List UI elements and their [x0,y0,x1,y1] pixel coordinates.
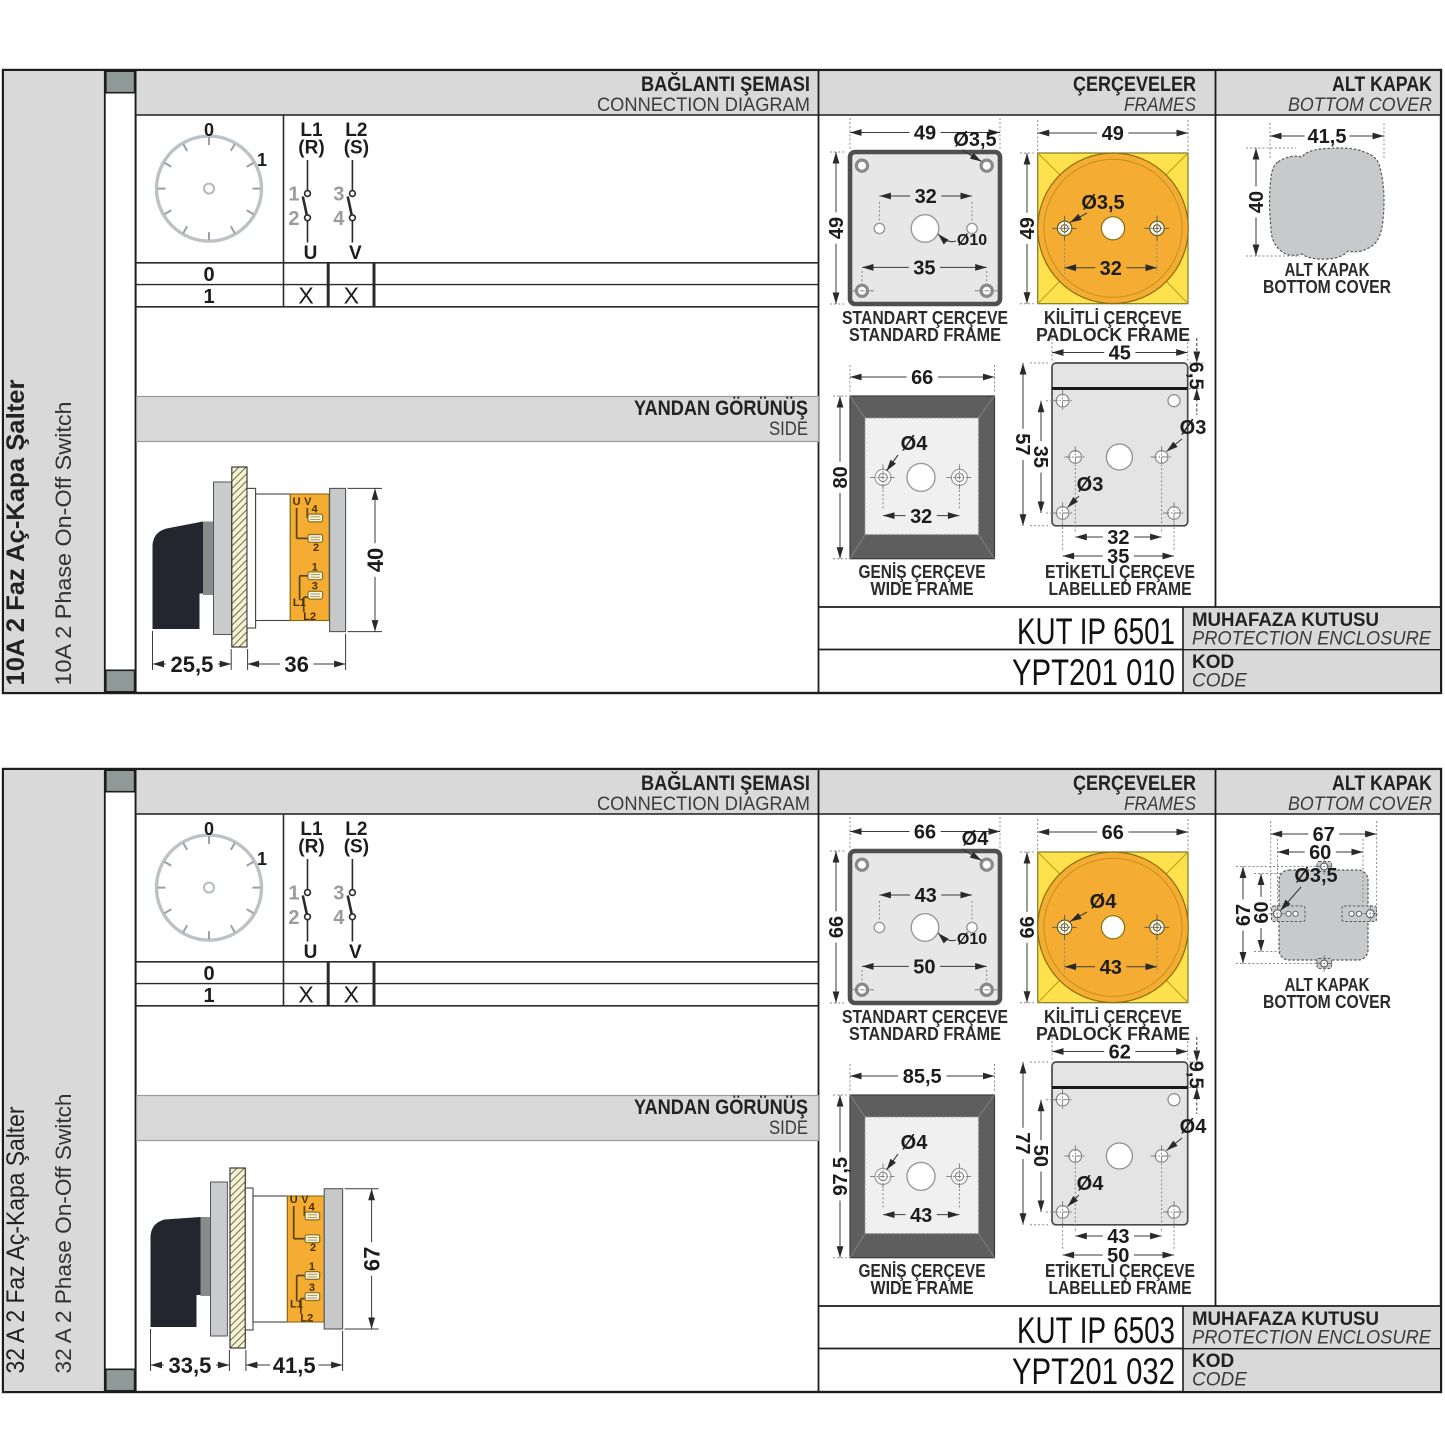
svg-text:BAĞLANTI ŞEMASI: BAĞLANTI ŞEMASI [641,771,810,795]
svg-text:50: 50 [913,957,935,979]
svg-text:1: 1 [257,849,267,869]
svg-text:STANDARD FRAME: STANDARD FRAME [849,324,1001,345]
svg-text:U: U [304,942,318,963]
svg-text:CODE: CODE [1192,1370,1247,1391]
svg-text:67: 67 [360,1247,385,1271]
svg-text:BOTTOM COVER: BOTTOM COVER [1263,991,1391,1012]
svg-text:3: 3 [333,883,344,905]
svg-text:97,5: 97,5 [830,1157,852,1196]
svg-text:LABELLED FRAME: LABELLED FRAME [1049,578,1192,599]
svg-text:6,5: 6,5 [1185,362,1207,390]
svg-text:1: 1 [288,184,299,206]
svg-text:45: 45 [1109,343,1131,365]
svg-text:Ø3: Ø3 [1180,417,1207,439]
svg-text:49: 49 [914,123,936,145]
svg-text:1: 1 [257,150,267,170]
svg-text:Ø3: Ø3 [1077,474,1104,496]
svg-text:66: 66 [1102,822,1124,844]
svg-text:YPT201 010: YPT201 010 [1012,652,1175,693]
svg-text:66: 66 [1017,916,1039,938]
svg-text:PROTECTION ENCLOSURE: PROTECTION ENCLOSURE [1192,629,1431,650]
svg-text:2: 2 [288,208,299,230]
svg-text:Ø4: Ø4 [1090,891,1118,913]
svg-text:ÇERÇEVELER: ÇERÇEVELER [1073,772,1196,795]
svg-text:LABELLED FRAME: LABELLED FRAME [1049,1277,1192,1298]
svg-text:2: 2 [288,907,299,929]
svg-text:36: 36 [284,652,308,677]
svg-text:66: 66 [914,822,936,844]
svg-text:3: 3 [333,184,344,206]
svg-text:66: 66 [826,916,848,938]
svg-text:WIDE FRAME: WIDE FRAME [871,578,974,599]
svg-text:40: 40 [363,548,388,572]
svg-text:Ø4: Ø4 [901,1132,929,1154]
svg-text:41,5: 41,5 [1308,126,1347,148]
svg-text:SIDE: SIDE [769,418,808,440]
svg-text:2: 2 [310,1242,316,1254]
svg-text:Ø10: Ø10 [957,931,987,948]
svg-text:1: 1 [203,985,214,1007]
svg-text:U: U [290,1194,298,1206]
svg-text:V: V [349,243,362,264]
svg-text:Ø4: Ø4 [1077,1173,1105,1195]
svg-text:4: 4 [333,907,345,929]
svg-text:25,5: 25,5 [170,652,213,677]
svg-text:YANDAN GÖRÜNÜŞ: YANDAN GÖRÜNÜŞ [634,1096,808,1119]
svg-text:Ø10: Ø10 [957,232,987,249]
svg-text:V: V [349,942,362,963]
svg-text:BOTTOM COVER: BOTTOM COVER [1288,94,1432,116]
svg-text:2: 2 [313,542,319,554]
svg-text:(R): (R) [298,837,324,858]
svg-text:KUT IP 6503: KUT IP 6503 [1017,1310,1175,1351]
svg-text:BAĞLANTI ŞEMASI: BAĞLANTI ŞEMASI [641,72,810,96]
svg-text:60: 60 [1251,901,1273,923]
svg-text:STANDARD FRAME: STANDARD FRAME [849,1023,1001,1044]
svg-text:CONNECTION DIAGRAM: CONNECTION DIAGRAM [597,793,810,815]
svg-text:32 A 2 Faz Aç-Kapa Şalter: 32 A 2 Faz Aç-Kapa Şalter [2,1107,30,1374]
svg-text:(S): (S) [344,138,369,159]
svg-text:50: 50 [1029,1145,1051,1167]
svg-text:L1: L1 [293,597,306,609]
svg-text:FRAMES: FRAMES [1124,793,1196,815]
svg-text:85,5: 85,5 [903,1066,942,1088]
svg-text:4: 4 [309,1202,316,1214]
svg-text:43: 43 [915,885,937,907]
svg-text:3: 3 [309,1282,315,1294]
svg-text:U: U [304,243,318,264]
svg-text:X: X [344,982,359,1008]
svg-text:Ø3,5: Ø3,5 [1081,192,1124,214]
svg-text:X: X [298,982,313,1008]
svg-text:Ø4: Ø4 [901,433,929,455]
svg-text:32 A 2 Phase On-Off Switch: 32 A 2 Phase On-Off Switch [51,1094,76,1374]
svg-text:YPT201 032: YPT201 032 [1012,1351,1175,1392]
svg-text:PROTECTION ENCLOSURE: PROTECTION ENCLOSURE [1192,1328,1431,1349]
svg-text:62: 62 [1109,1042,1131,1064]
svg-text:0: 0 [203,264,214,286]
svg-text:1: 1 [312,561,318,573]
svg-text:FRAMES: FRAMES [1124,94,1196,116]
svg-text:60: 60 [1309,842,1331,864]
svg-text:WIDE FRAME: WIDE FRAME [871,1277,974,1298]
svg-text:U: U [293,496,301,508]
svg-text:10A 2 Phase On-Off Switch: 10A 2 Phase On-Off Switch [51,402,76,686]
svg-text:YANDAN GÖRÜNÜŞ: YANDAN GÖRÜNÜŞ [634,397,808,420]
svg-text:Ø3,5: Ø3,5 [1294,865,1337,887]
svg-text:L2: L2 [303,611,316,623]
svg-text:35: 35 [1029,446,1051,468]
svg-text:CODE: CODE [1192,671,1247,692]
svg-text:Ø4: Ø4 [962,828,990,850]
svg-text:43: 43 [1100,957,1122,979]
svg-text:49: 49 [1102,123,1124,145]
svg-text:66: 66 [911,367,933,389]
svg-text:43: 43 [910,1205,932,1227]
svg-text:L2: L2 [300,1313,313,1325]
svg-text:80: 80 [830,466,852,488]
svg-text:32: 32 [910,506,932,528]
svg-text:ALT KAPAK: ALT KAPAK [1332,772,1432,795]
svg-text:4: 4 [312,504,319,516]
svg-text:40: 40 [1246,191,1268,213]
svg-text:49: 49 [1017,217,1039,239]
svg-text:KUT IP 6501: KUT IP 6501 [1017,611,1175,652]
svg-text:0: 0 [204,819,214,839]
svg-text:1: 1 [288,883,299,905]
svg-text:(R): (R) [298,138,324,159]
svg-text:49: 49 [826,217,848,239]
svg-text:10A 2 Faz Aç-Kapa Şalter: 10A 2 Faz Aç-Kapa Şalter [2,379,30,685]
svg-text:ALT KAPAK: ALT KAPAK [1332,73,1432,96]
svg-text:BOTTOM COVER: BOTTOM COVER [1263,276,1391,297]
svg-text:Ø4: Ø4 [1180,1116,1208,1138]
svg-text:(S): (S) [344,837,369,858]
svg-text:35: 35 [913,258,935,280]
svg-text:0: 0 [203,963,214,985]
svg-text:L1: L1 [290,1299,303,1311]
svg-text:1: 1 [203,286,214,308]
svg-text:33,5: 33,5 [168,1353,211,1378]
svg-text:Ø3,5: Ø3,5 [953,129,996,151]
svg-text:1: 1 [309,1261,315,1273]
svg-text:BOTTOM COVER: BOTTOM COVER [1288,793,1432,815]
svg-text:9,5: 9,5 [1185,1061,1207,1089]
svg-text:CONNECTION DIAGRAM: CONNECTION DIAGRAM [597,94,810,116]
svg-text:SIDE: SIDE [769,1117,808,1139]
svg-text:X: X [298,283,313,309]
svg-text:4: 4 [333,208,345,230]
svg-text:32: 32 [915,186,937,208]
svg-text:41,5: 41,5 [273,1353,316,1378]
svg-text:3: 3 [312,581,318,593]
svg-text:X: X [344,283,359,309]
svg-text:0: 0 [204,120,214,140]
svg-text:ÇERÇEVELER: ÇERÇEVELER [1073,73,1196,96]
svg-text:32: 32 [1100,258,1122,280]
